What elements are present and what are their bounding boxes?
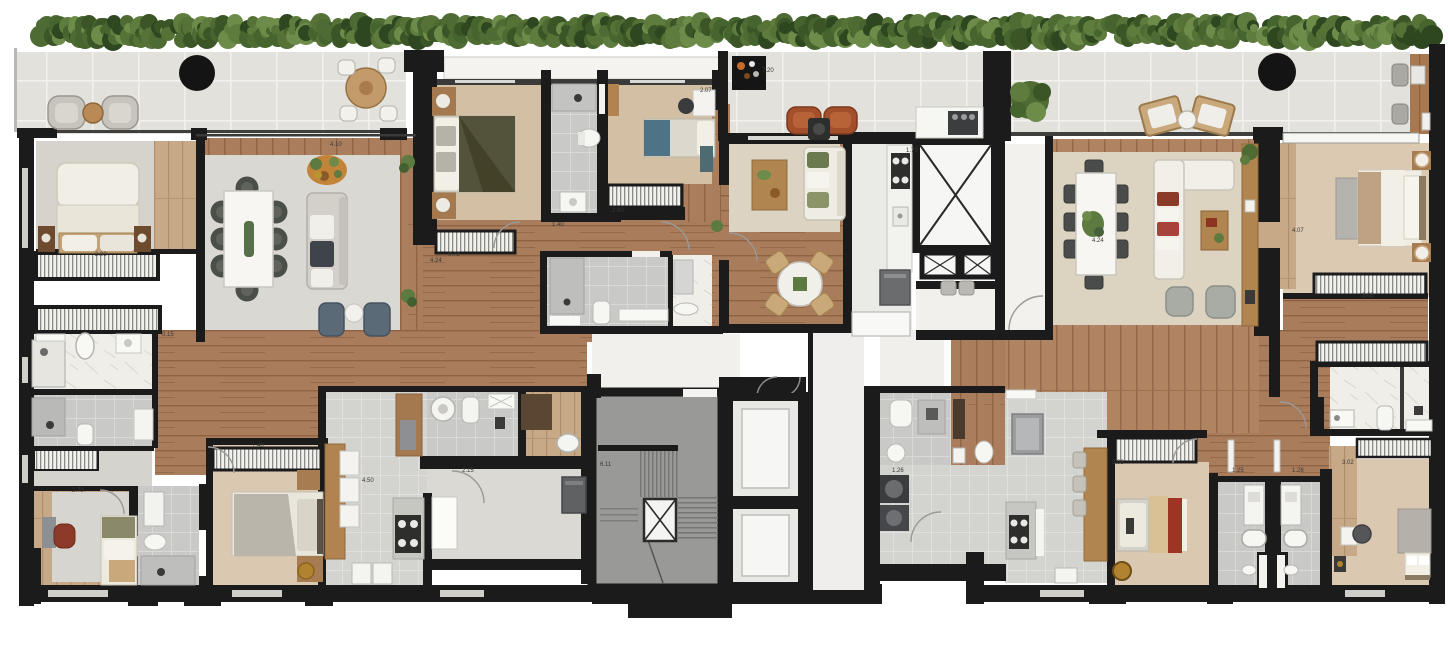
svg-text:4.24: 4.24 (430, 258, 442, 264)
svg-text:1.25: 1.25 (1232, 468, 1244, 474)
svg-text:0.72: 0.72 (448, 252, 460, 258)
svg-text:4.50: 4.50 (362, 478, 374, 484)
svg-text:4.07: 4.07 (1292, 228, 1304, 234)
svg-text:2.15: 2.15 (462, 468, 474, 474)
svg-text:4.24: 4.24 (1092, 238, 1104, 244)
svg-text:2.08: 2.08 (95, 252, 107, 258)
svg-text:6.11: 6.11 (600, 462, 612, 468)
svg-text:0.15: 0.15 (162, 332, 174, 338)
svg-text:1.40: 1.40 (252, 443, 264, 449)
svg-text:1.26: 1.26 (892, 468, 904, 474)
svg-text:1.26: 1.26 (1292, 468, 1304, 474)
svg-text:3.08: 3.08 (1362, 293, 1374, 299)
svg-text:2.80: 2.80 (612, 208, 624, 214)
svg-text:3.02: 3.02 (1342, 460, 1354, 466)
svg-text:3.08: 3.08 (1112, 460, 1124, 466)
svg-text:4.10: 4.10 (330, 142, 342, 148)
svg-text:2.73: 2.73 (72, 488, 84, 494)
svg-text:1.70: 1.70 (906, 148, 918, 154)
svg-text:2.07: 2.07 (700, 88, 712, 94)
svg-text:1.40: 1.40 (552, 222, 564, 228)
svg-text:7.20: 7.20 (762, 68, 774, 74)
